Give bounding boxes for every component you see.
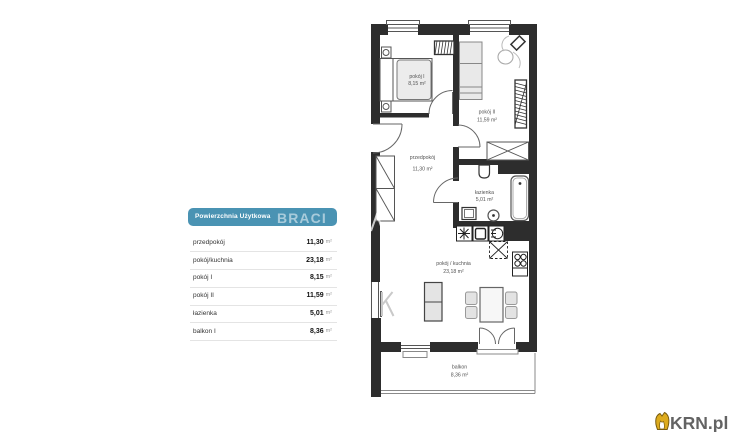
svg-text:balkon: balkon — [452, 365, 467, 371]
svg-text:KRN.pl: KRN.pl — [670, 413, 728, 432]
svg-text:11,59 m²: 11,59 m² — [477, 118, 497, 124]
svg-text:pokój / kuchnia: pokój / kuchnia — [436, 261, 471, 267]
svg-text:5,01 m²: 5,01 m² — [476, 197, 494, 203]
svg-text:8,36 m²: 8,36 m² — [451, 373, 469, 379]
svg-text:23,18 m²: 23,18 m² — [443, 269, 464, 275]
svg-text:łazienka: łazienka — [475, 190, 494, 196]
svg-text:przedpokój: przedpokój — [410, 155, 435, 161]
svg-text:8,15 m²: 8,15 m² — [408, 81, 426, 87]
svg-text:11,30 m²: 11,30 m² — [412, 167, 432, 173]
svg-text:pokój I: pokój I — [409, 74, 424, 80]
svg-text:pokój II: pokój II — [479, 110, 496, 116]
